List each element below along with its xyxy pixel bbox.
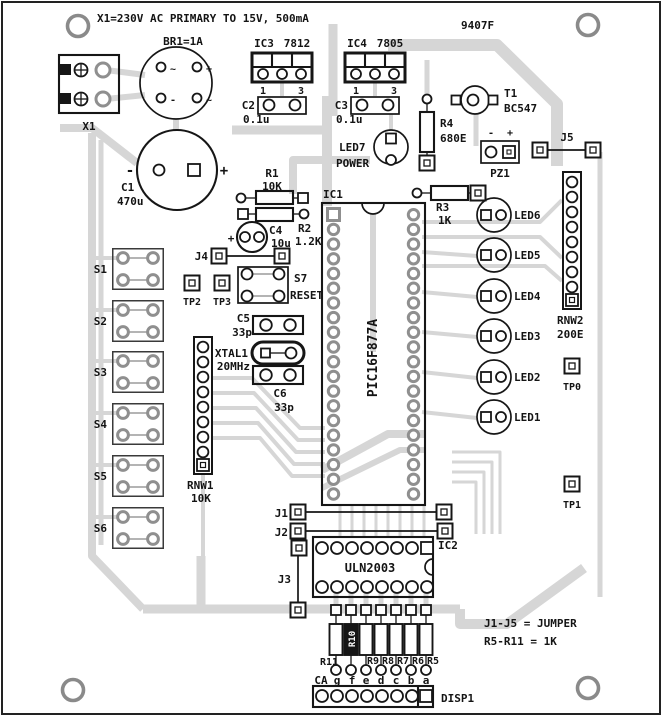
c6-label: C6 (273, 387, 287, 400)
bridge-rectifier-br1: BR1=1A ~ + - ~ (140, 35, 212, 119)
ic1-part-label: PIC16F877A (366, 319, 381, 397)
ic4-pin1-label: 1 (353, 86, 359, 97)
j3-label: J3 (278, 573, 291, 586)
r5-label: R5 (427, 656, 439, 667)
jumper-j5: J5 (533, 131, 601, 158)
ic2-part-label: ULN2003 (345, 561, 396, 575)
testpoint-tp0: TP0 (563, 359, 581, 394)
ic1-pin1-square-pad (328, 209, 340, 221)
r11-label: R11 (320, 657, 338, 668)
xtal1-label: XTAL1 (215, 347, 248, 360)
s6-label: S6 (94, 522, 108, 535)
resistor-r4: R4 680E (420, 95, 467, 171)
mounting-hole-top-left (68, 16, 89, 37)
ic3-pin1-label: 1 (260, 86, 266, 97)
led4: LED4 (477, 279, 541, 313)
led5-label: LED5 (514, 249, 541, 262)
xtal1-value: 20MHz (217, 360, 250, 373)
s5-label: S5 (94, 470, 107, 483)
j1-label: J1 (275, 507, 289, 520)
br1-label: BR1=1A (163, 35, 203, 48)
led1: LED1 (477, 400, 541, 434)
resistor-note-text: R5-R11 = 1K (484, 635, 557, 648)
br1-mark-ac1: ~ (170, 64, 176, 75)
buzzer-pz1: - + PZ1 (481, 128, 519, 180)
r3-value: 1K (438, 214, 452, 227)
capacitor-c1: - + C1 470u (117, 130, 228, 210)
switch-s6: S6 (94, 508, 164, 549)
r8-label: R8 (382, 656, 394, 667)
led1-label: LED1 (514, 411, 541, 424)
pz1-label: PZ1 (490, 167, 510, 180)
s3-label: S3 (94, 366, 107, 379)
led3: LED3 (477, 319, 541, 353)
r9-label: R9 (367, 656, 379, 667)
switch-s1: S1 (94, 249, 164, 290)
led6-label: LED6 (514, 209, 541, 222)
led7-caption: POWER (336, 157, 369, 170)
r6-label: R6 (412, 656, 424, 667)
j2-label: J2 (275, 526, 288, 539)
jumper-note-text: J1-J5 = JUMPER (484, 617, 577, 630)
resistor-r1: R1 10K (237, 167, 309, 204)
capacitor-c2: C2 0.1u (242, 97, 306, 126)
c3-label: C3 (335, 99, 348, 112)
c1-minus-mark: - (126, 163, 134, 179)
pcb-canvas: X1=230V AC PRIMARY TO 15V, 500mA 9407F X… (0, 0, 663, 720)
rnw1-value: 10K (191, 492, 211, 505)
c4-plus-mark: + (228, 232, 235, 245)
led3-label: LED3 (514, 330, 541, 343)
t1-label: T1 (504, 87, 518, 100)
ic2-label: IC2 (438, 539, 458, 552)
c2-label: C2 (242, 99, 255, 112)
r10-label: R10 (348, 631, 358, 647)
resistor-network-rnw1: RNW1 10K (187, 337, 214, 505)
ic4-pin3-label: 3 (391, 86, 397, 97)
c6-value: 33p (274, 401, 294, 414)
r4-label: R4 (440, 117, 454, 130)
pz1-plus-mark: + (507, 128, 513, 139)
testpoint-tp2: TP2 (183, 276, 201, 309)
tp1-label: TP1 (563, 500, 581, 511)
ic1-label: IC1 (323, 188, 343, 201)
switch-s2: S2 (94, 301, 164, 342)
ic3-pin3-label: 3 (298, 86, 304, 97)
j5-label: J5 (560, 131, 573, 144)
br1-mark-minus: - (170, 95, 176, 106)
c1-value: 470u (117, 195, 144, 208)
r4-value: 680E (440, 132, 467, 145)
board-code-text: 9407F (461, 19, 494, 32)
s2-label: S2 (94, 315, 107, 328)
capacitor-c5: C5 33p (232, 312, 303, 339)
ic3-label: IC3 (254, 37, 274, 50)
led7-label: LED7 (339, 141, 366, 154)
br1-mark-ac2: ~ (206, 95, 212, 106)
c5-label: C5 (237, 312, 250, 325)
led6: LED6 (477, 198, 541, 232)
t1-part-label: BC547 (504, 102, 537, 115)
segment-resistors: R10 R11 R9 R8 R7 R6 R5 (320, 605, 439, 675)
pz1-minus-mark: - (488, 128, 494, 139)
display-connector-disp1: DISP1 (313, 686, 474, 707)
mounting-hole-bottom-right (578, 678, 599, 699)
mounting-hole-top-right (578, 15, 599, 36)
led4-label: LED4 (514, 290, 541, 303)
r7-label: R7 (397, 656, 409, 667)
r1-label: R1 (265, 167, 279, 180)
j4-label: J4 (195, 250, 209, 263)
s4-label: S4 (94, 418, 108, 431)
switch-s3: S3 (94, 352, 164, 393)
r2-label: R2 (298, 222, 311, 235)
switch-s5: S5 (94, 456, 164, 497)
tp2-label: TP2 (183, 297, 201, 308)
testpoint-tp1: TP1 (563, 477, 581, 512)
x1-label: X1 (82, 120, 96, 133)
s1-label: S1 (94, 263, 108, 276)
br1-mark-plus: + (206, 64, 212, 75)
led2: LED2 (477, 360, 541, 394)
ic4-part-label: 7805 (377, 37, 404, 50)
jumper-j4: J4 (195, 249, 290, 264)
r2-value: 1.2K (295, 235, 322, 248)
c1-plus-mark: + (220, 163, 228, 179)
connector-x1: X1 (58, 55, 119, 133)
c5-value: 33p (232, 326, 252, 339)
c3-value: 0.1u (336, 113, 363, 126)
led7-power: LED7 POWER (336, 130, 408, 170)
c4-label: C4 (269, 224, 283, 237)
s7-label: S7 (294, 272, 307, 285)
switch-s4: S4 (94, 404, 164, 445)
c2-value: 0.1u (243, 113, 270, 126)
r3-label: R3 (436, 201, 449, 214)
pcb-layout-diagram: X1=230V AC PRIMARY TO 15V, 500mA 9407F X… (0, 0, 663, 720)
disp1-label: DISP1 (441, 692, 474, 705)
testpoint-tp3: TP3 (213, 276, 231, 309)
capacitor-c6: C6 33p (253, 366, 303, 414)
tp3-label: TP3 (213, 297, 231, 308)
transistor-t1: T1 BC547 (452, 86, 538, 115)
transformer-note-text: X1=230V AC PRIMARY TO 15V, 500mA (97, 12, 309, 25)
c1-label: C1 (121, 181, 135, 194)
mounting-hole-bottom-left (63, 680, 84, 701)
driver-ic2: IC2 ULN2003 (313, 537, 458, 597)
tp0-label: TP0 (563, 382, 581, 393)
switch-s7-reset: S7 RESET (238, 267, 323, 303)
rnw2-label: RNW2 (557, 314, 584, 327)
ic4-label: IC4 (347, 37, 367, 50)
rnw2-value: 200E (557, 328, 584, 341)
s7-caption: RESET (290, 289, 323, 302)
ic3-part-label: 7812 (284, 37, 311, 50)
rnw1-label: RNW1 (187, 479, 214, 492)
led2-label: LED2 (514, 371, 541, 384)
